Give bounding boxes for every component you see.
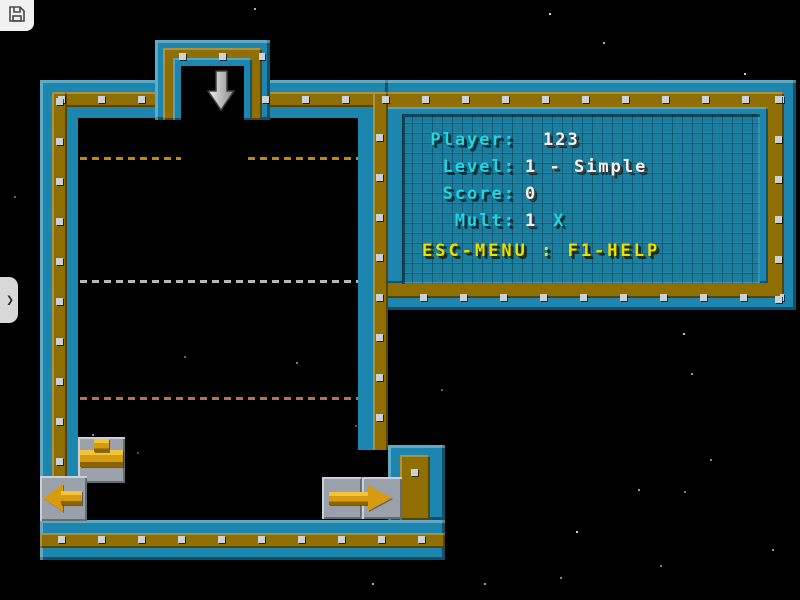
level-label: Level: [416, 157, 516, 177]
help-line: ESC-MENU : F1-HELP [416, 241, 766, 261]
floppy-disk-icon [8, 5, 26, 27]
mult-suffix: X [553, 211, 565, 231]
star [691, 373, 693, 375]
rivets-info-right [775, 96, 782, 304]
rivets-left [56, 98, 63, 512]
rivets-drop-chute [179, 53, 265, 60]
star [660, 565, 662, 567]
star [484, 583, 486, 585]
game-screen: Player: 123 Level: 1 - Simple Score: 0 M… [0, 0, 800, 600]
star [184, 356, 186, 358]
star [603, 42, 605, 44]
arrow-left-shaft [61, 491, 82, 505]
star [92, 434, 94, 436]
star [441, 389, 443, 391]
rivets-bottom [58, 536, 440, 543]
rivet-right-base [411, 469, 418, 476]
star [710, 459, 712, 461]
star [254, 8, 256, 10]
star [772, 549, 774, 551]
rivets-info-bottom [420, 294, 784, 301]
save-button[interactable] [0, 0, 34, 31]
star [372, 583, 374, 585]
player-value: 123 [543, 130, 580, 150]
arrow-right-shaft [329, 492, 370, 505]
arrow-right-head [368, 485, 392, 511]
tee-pipe-stub [94, 439, 109, 452]
player-label: Player: [416, 130, 516, 150]
mult-label: Mult: [416, 211, 516, 231]
hud-row-mult: Mult: 1 X [416, 207, 766, 234]
score-value: 0 [525, 184, 537, 204]
star [684, 491, 686, 493]
star [683, 333, 685, 335]
arrow-left-head [43, 484, 63, 512]
rivets-top-right [262, 96, 784, 103]
star [296, 362, 298, 364]
hud-row-level: Level: 1 - Simple [416, 153, 766, 180]
star [137, 452, 139, 454]
piece-arrow-right [322, 477, 401, 519]
star [638, 489, 640, 491]
rivets-top-left [58, 96, 156, 103]
rivets-play-right [376, 134, 383, 434]
guide-line-bottom [80, 397, 358, 400]
score-label: Score: [416, 184, 516, 204]
drop-arrow-icon [206, 70, 236, 116]
chevron-right-icon: ❯ [6, 293, 14, 308]
wall-gold-band-right-base [400, 455, 430, 520]
mult-value: 1 [525, 211, 537, 231]
hud-row-player: Player: 123 [416, 126, 766, 153]
star [14, 196, 16, 198]
star [549, 13, 551, 15]
level-value: 1 - Simple [525, 157, 647, 177]
star [744, 73, 746, 75]
star [355, 425, 357, 427]
guide-line-middle [80, 280, 358, 283]
piece-arrow-left [40, 476, 87, 521]
hud-row-score: Score: 0 [416, 180, 766, 207]
star [560, 577, 562, 579]
side-panel-tab[interactable]: ❯ [0, 277, 18, 323]
star [576, 531, 578, 533]
tee-pipe-bar [80, 450, 123, 467]
hud: Player: 123 Level: 1 - Simple Score: 0 M… [416, 126, 766, 261]
